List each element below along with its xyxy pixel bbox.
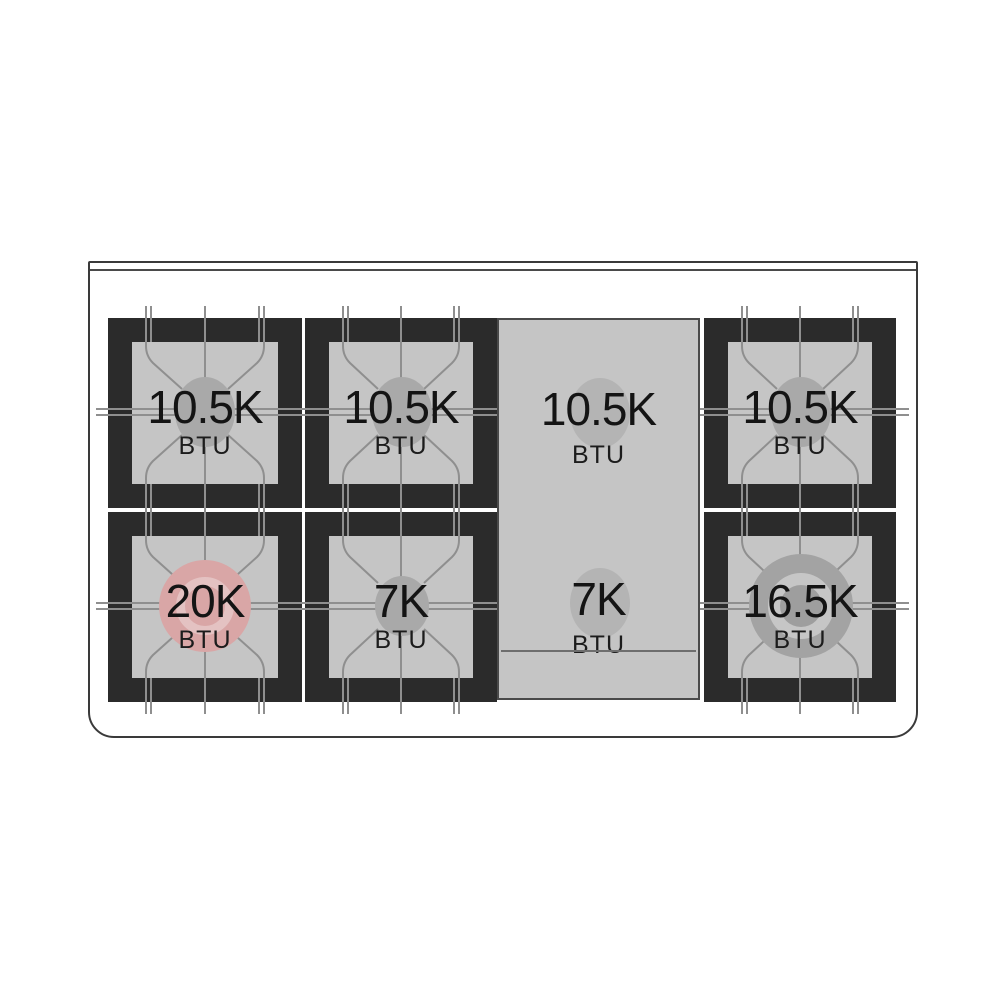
- burner-btu-value: 16.5K: [704, 578, 896, 624]
- burner-bottom-left: 20K BTU: [108, 512, 302, 702]
- burner-btu-value: 10.5K: [305, 384, 497, 430]
- burner-bottom-center: 7K BTU: [305, 512, 497, 702]
- burner-btu-value: 7K: [305, 578, 497, 624]
- burner-bottom-right: 16.5K BTU: [704, 512, 896, 702]
- burner-btu-unit: BTU: [305, 434, 497, 459]
- burner-btu-unit: BTU: [108, 434, 302, 459]
- burner-btu-value: 10.5K: [704, 384, 896, 430]
- burner-top-right: 10.5K BTU: [704, 318, 896, 508]
- burner-top-left: 10.5K BTU: [108, 318, 302, 508]
- cooktop-diagram: 10.5K BTU 10.5K BTU 10.5K BT: [88, 261, 918, 738]
- burner-btu-value: 7K: [499, 576, 698, 622]
- griddle-top-label: 10.5K BTU: [499, 386, 698, 480]
- cooktop-back-rail: [90, 263, 916, 271]
- burner-btu-value: 10.5K: [108, 384, 302, 430]
- burner-btu-unit: BTU: [305, 628, 497, 653]
- burner-top-center: 10.5K BTU: [305, 318, 497, 508]
- burner-btu-unit: BTU: [704, 434, 896, 459]
- griddle-bottom-label: 7K BTU: [499, 576, 698, 670]
- burner-btu-value: 20K: [108, 578, 302, 624]
- burner-btu-unit: BTU: [499, 432, 698, 480]
- burner-btu-value: 10.5K: [499, 386, 698, 432]
- griddle-plate: 10.5K BTU 7K BTU: [497, 318, 700, 700]
- burner-btu-unit: BTU: [704, 628, 896, 653]
- burner-btu-unit: BTU: [499, 622, 698, 670]
- griddle-front-lip: [501, 650, 696, 652]
- burner-btu-unit: BTU: [108, 628, 302, 653]
